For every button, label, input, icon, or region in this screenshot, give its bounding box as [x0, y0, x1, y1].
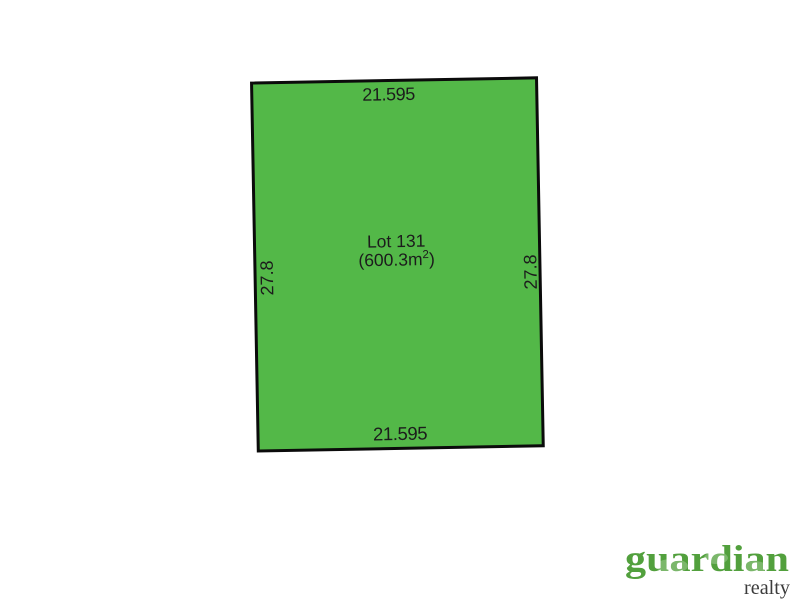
svg-text:21.595: 21.595 — [362, 84, 415, 105]
svg-text:21.595: 21.595 — [373, 422, 428, 444]
svg-text:27.8: 27.8 — [257, 260, 278, 295]
svg-text:realty: realty — [744, 577, 790, 599]
svg-text:27.8: 27.8 — [520, 254, 541, 289]
